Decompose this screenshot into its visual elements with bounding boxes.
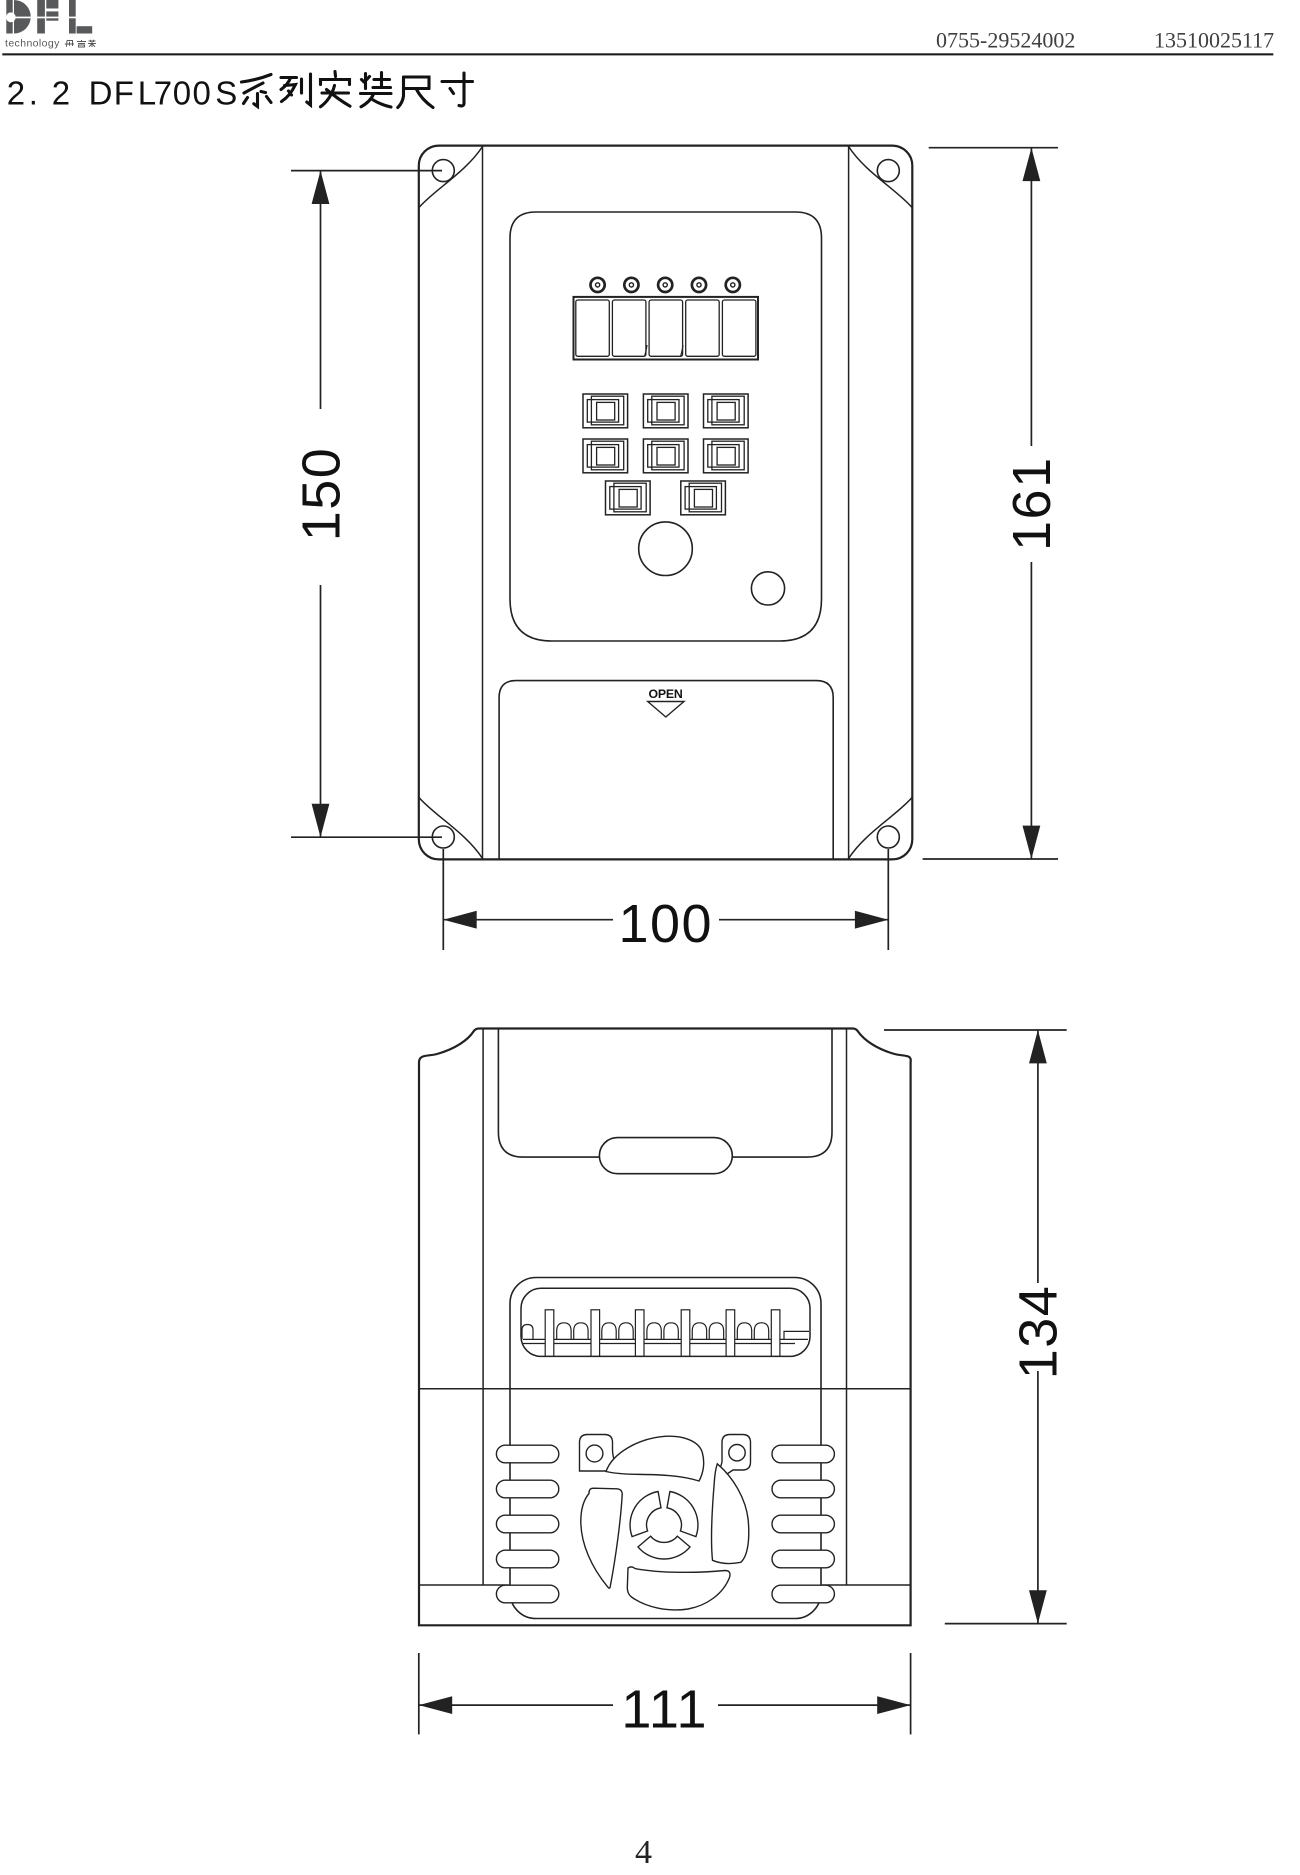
svg-text:134: 134 — [1009, 1285, 1069, 1380]
svg-text:D: D — [89, 75, 113, 112]
svg-text:161: 161 — [1002, 456, 1062, 551]
svg-text:2: 2 — [52, 75, 70, 112]
svg-text:150: 150 — [291, 447, 351, 542]
svg-text:13510025117: 13510025117 — [1154, 28, 1274, 53]
svg-text:100: 100 — [618, 894, 713, 954]
svg-text:7: 7 — [154, 75, 172, 112]
svg-text:0: 0 — [193, 75, 211, 112]
svg-text:S: S — [215, 75, 237, 112]
svg-text:technology: technology — [5, 38, 60, 50]
svg-text:.: . — [29, 75, 38, 112]
svg-text:4: 4 — [635, 1834, 652, 1871]
svg-text:111: 111 — [621, 1679, 708, 1739]
svg-text:0: 0 — [173, 75, 191, 112]
svg-text:0755-29524002: 0755-29524002 — [936, 28, 1075, 53]
svg-text:OPEN: OPEN — [648, 687, 682, 701]
svg-text:2: 2 — [7, 75, 25, 112]
svg-text:F: F — [114, 75, 134, 112]
